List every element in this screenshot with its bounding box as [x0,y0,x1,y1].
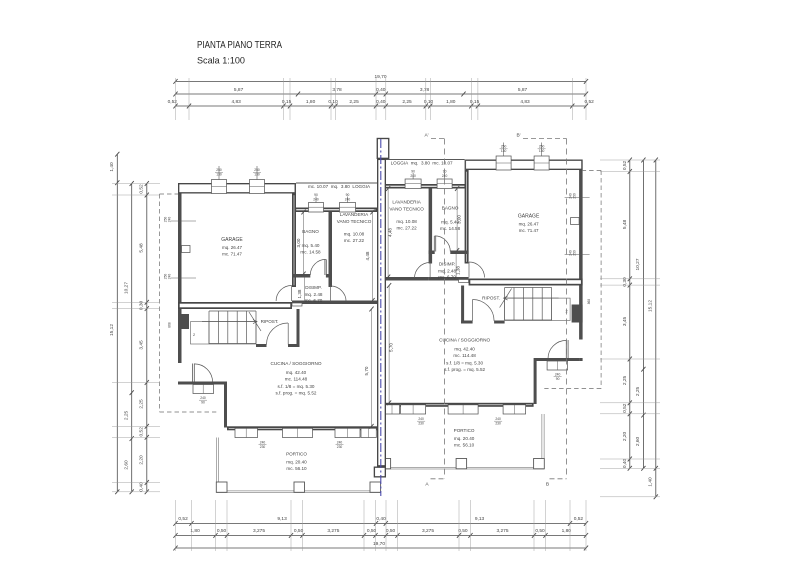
svg-text:2,60: 2,60 [635,437,641,447]
svg-text:15,12: 15,12 [109,324,115,336]
svg-text:CUCINA / SOGGIORNO: CUCINA / SOGGIORNO [270,361,321,366]
svg-text:PORTICO: PORTICO [286,452,307,457]
svg-text:0,52: 0,52 [178,516,188,522]
svg-text:240: 240 [569,193,573,199]
svg-text:Scala 1:100: Scala 1:100 [197,56,245,67]
svg-text:240: 240 [168,274,172,280]
svg-text:130: 130 [501,149,507,153]
svg-text:868: 868 [168,322,172,328]
svg-text:250: 250 [539,145,545,149]
svg-text:mq. 20.40: mq. 20.40 [454,436,475,441]
svg-text:mq. 10.08: mq. 10.08 [396,219,417,224]
svg-text:mc. 56.10: mc. 56.10 [454,443,475,448]
svg-text:250: 250 [573,250,577,256]
svg-text:0,10: 0,10 [424,99,434,105]
svg-text:130: 130 [539,149,545,153]
svg-text:240: 240 [418,417,424,421]
svg-text:mc. 27.22: mc. 27.22 [397,226,418,231]
svg-text:0,10: 0,10 [328,99,338,105]
svg-text:240: 240 [345,197,351,201]
svg-text:PIANTA PIANO TERRA: PIANTA PIANO TERRA [197,39,282,51]
svg-text:GARAGE: GARAGE [221,237,243,243]
svg-text:0,40: 0,40 [376,516,386,522]
svg-text:250: 250 [573,193,577,199]
svg-text:mc. 10.07 mq. 3.80 LOGGIA: mc. 10.07 mq. 3.80 LOGGIA [308,184,371,189]
svg-text:5,48: 5,48 [622,220,628,230]
svg-text:130: 130 [254,173,260,177]
svg-text:0,52: 0,52 [622,403,628,413]
svg-text:3,45: 3,45 [622,317,628,327]
svg-text:mc. 114.48: mc. 114.48 [285,377,308,382]
svg-text:5,87: 5,87 [234,87,244,93]
svg-text:1,38: 1,38 [456,266,461,275]
svg-text:2,25: 2,25 [622,376,628,386]
svg-text:mq. 42.40: mq. 42.40 [454,347,475,352]
svg-text:3,00: 3,00 [296,238,301,247]
svg-text:s.f. 1/8 = mq. 5.30: s.f. 1/8 = mq. 5.30 [278,384,315,389]
svg-text:4,83: 4,83 [520,99,530,105]
svg-text:1,40: 1,40 [109,162,115,172]
svg-text:mc. 71.47: mc. 71.47 [519,228,539,233]
svg-text:0,40: 0,40 [376,87,386,93]
svg-text:2,60: 2,60 [124,460,130,470]
svg-text:1,80: 1,80 [306,99,316,105]
svg-text:s.f. prog. = mq. 5.52: s.f. prog. = mq. 5.52 [276,391,317,396]
svg-text:0,40: 0,40 [622,459,628,469]
svg-text:240: 240 [200,396,206,400]
svg-text:mq. 20.40: mq. 20.40 [286,460,307,465]
svg-text:2,20: 2,20 [139,455,145,465]
svg-text:230: 230 [337,445,343,449]
svg-text:mc. 71.47: mc. 71.47 [222,252,242,257]
svg-text:10,27: 10,27 [635,258,641,270]
svg-text:230: 230 [260,445,266,449]
svg-text:RIPOST.: RIPOST. [261,319,279,324]
svg-text:DISIMP.: DISIMP. [305,285,322,290]
svg-text:4,48: 4,48 [365,251,370,260]
svg-text:mq. 10.08: mq. 10.08 [344,232,365,237]
svg-text:3,00: 3,00 [457,215,462,224]
svg-text:3,275: 3,275 [496,528,508,534]
svg-text:19,70: 19,70 [373,541,385,547]
svg-text:mc. 114.48: mc. 114.48 [453,353,476,358]
svg-text:mq. 5.40: mq. 5.40 [302,243,320,248]
svg-text:240: 240 [410,174,416,178]
svg-text:250: 250 [254,168,260,172]
svg-text:19,70: 19,70 [374,74,386,80]
svg-text:3,78: 3,78 [420,87,430,93]
svg-text:4,48: 4,48 [388,228,393,237]
svg-text:mc. 27.22: mc. 27.22 [344,238,365,243]
svg-text:3,275: 3,275 [253,528,265,534]
svg-text:240: 240 [313,197,319,201]
svg-text:250: 250 [501,145,507,149]
svg-text:3,45: 3,45 [139,340,145,350]
svg-text:5,70: 5,70 [364,366,369,375]
svg-text:mc. 56.10: mc. 56.10 [286,466,307,471]
svg-text:mc. 6.70: mc. 6.70 [438,275,456,280]
svg-text:1,38: 1,38 [297,289,302,298]
svg-text:0,52: 0,52 [168,99,178,105]
svg-text:VANO TECNICO: VANO TECNICO [337,219,372,224]
svg-text:BAGNO: BAGNO [302,229,319,234]
svg-text:RIPOST.: RIPOST. [482,296,500,301]
svg-text:3,275: 3,275 [327,528,339,534]
svg-text:90: 90 [201,401,205,405]
svg-text:240: 240 [569,250,573,256]
svg-text:250: 250 [216,168,222,172]
svg-text:240: 240 [337,441,343,445]
svg-text:2: 2 [193,333,195,337]
svg-text:0,52: 0,52 [574,516,584,522]
svg-text:2,25: 2,25 [139,399,145,409]
svg-text:0,50: 0,50 [458,528,468,534]
svg-text:3,78: 3,78 [332,87,342,93]
svg-text:PORTICO: PORTICO [454,428,475,433]
svg-text:3,275: 3,275 [422,528,434,534]
svg-text:0,40: 0,40 [139,482,145,492]
svg-text:1,40: 1,40 [648,477,654,487]
svg-text:2,25: 2,25 [635,387,641,397]
svg-text:868: 868 [587,299,591,305]
svg-text:A': A' [424,133,428,139]
svg-text:DISIMP.: DISIMP. [439,262,456,267]
svg-text:mq. 2.48: mq. 2.48 [305,292,323,297]
svg-text:130: 130 [216,173,222,177]
svg-text:LAVANDERIA: LAVANDERIA [392,200,421,205]
svg-text:2,25: 2,25 [124,411,130,421]
svg-text:0,50: 0,50 [386,528,396,534]
svg-text:0,50: 0,50 [535,528,545,534]
svg-text:0,50: 0,50 [294,528,304,534]
svg-text:0,52: 0,52 [139,184,145,194]
svg-text:240: 240 [260,441,266,445]
svg-text:10,27: 10,27 [124,282,130,294]
svg-text:s.f. prog. = mq. 5.52: s.f. prog. = mq. 5.52 [444,367,485,372]
svg-text:B: B [546,482,549,488]
svg-text:2,25: 2,25 [349,99,359,105]
svg-text:5,48: 5,48 [139,243,145,253]
svg-text:VANO TECNICO: VANO TECNICO [389,207,424,212]
svg-text:240: 240 [495,417,501,421]
svg-text:B': B' [516,133,520,139]
svg-text:2,25: 2,25 [402,99,412,105]
svg-text:GARAGE: GARAGE [518,214,540,220]
svg-text:mc. 6.70: mc. 6.70 [305,298,323,303]
svg-text:0,52: 0,52 [139,427,145,437]
svg-text:230: 230 [418,422,424,426]
svg-text:mq. 26.47: mq. 26.47 [222,245,243,250]
svg-text:mq. 2.48: mq. 2.48 [438,269,456,274]
svg-text:1,80: 1,80 [446,99,456,105]
svg-text:LAVANDERIA: LAVANDERIA [340,212,369,217]
svg-text:9,13: 9,13 [475,516,485,522]
svg-text:90: 90 [556,377,560,381]
svg-text:5,87: 5,87 [518,87,528,93]
svg-text:0,50: 0,50 [217,528,227,534]
svg-text:0,40: 0,40 [376,99,386,105]
svg-text:1,80: 1,80 [190,528,200,534]
svg-text:CUCINA / SOGGIORNO: CUCINA / SOGGIORNO [439,338,490,343]
svg-text:15,12: 15,12 [648,300,654,312]
svg-text:9,13: 9,13 [277,516,287,522]
svg-text:0,50: 0,50 [367,528,377,534]
svg-text:240: 240 [168,217,172,223]
svg-text:mq. 42.40: mq. 42.40 [286,370,307,375]
svg-text:mc. 14.58: mc. 14.58 [440,226,461,231]
svg-text:5,70: 5,70 [389,343,394,352]
svg-text:0,52: 0,52 [622,161,628,171]
svg-text:2,20: 2,20 [622,432,628,442]
svg-text:s.f. 1/8 = mq. 5.30: s.f. 1/8 = mq. 5.30 [446,361,483,366]
svg-text:230: 230 [495,422,501,426]
svg-text:mq. 26.47: mq. 26.47 [519,222,540,227]
svg-text:LOGGIA mq. 3.80 mc. 10.07: LOGGIA mq. 3.80 mc. 10.07 [391,161,453,166]
svg-text:4,83: 4,83 [232,99,242,105]
svg-text:240: 240 [555,373,561,377]
